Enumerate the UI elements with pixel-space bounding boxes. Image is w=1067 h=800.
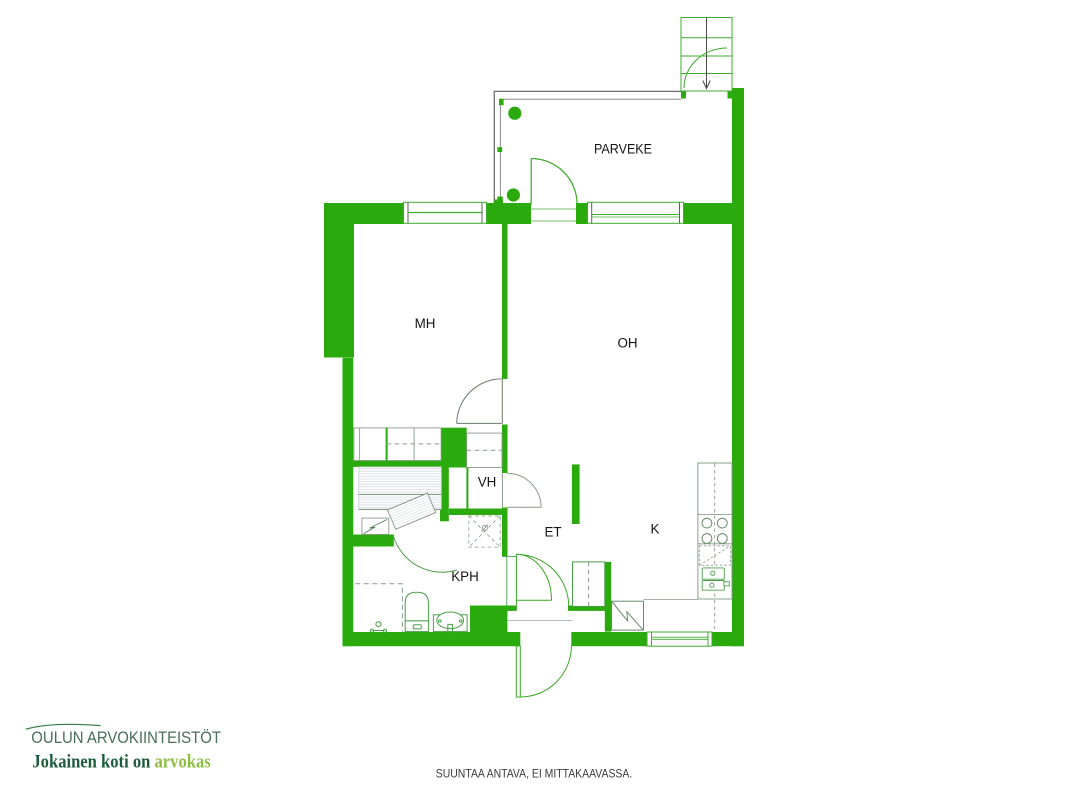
svg-text:SUUNTAA ANTAVA, EI MITTAKAAVAS: SUUNTAA ANTAVA, EI MITTAKAAVASSA. bbox=[436, 767, 633, 781]
svg-text:KPH: KPH bbox=[451, 569, 479, 584]
svg-text:OH: OH bbox=[617, 335, 637, 350]
svg-text:MH: MH bbox=[415, 316, 436, 331]
svg-text:OULUN ARVOKIINTEISTÖT: OULUN ARVOKIINTEISTÖT bbox=[31, 728, 221, 747]
svg-text:PARVEKE: PARVEKE bbox=[594, 142, 652, 157]
svg-text:Jokainen koti on arvokas: Jokainen koti on arvokas bbox=[32, 753, 210, 773]
svg-text:VH: VH bbox=[478, 475, 497, 490]
svg-text:K: K bbox=[651, 522, 660, 537]
svg-text:ET: ET bbox=[544, 525, 561, 540]
